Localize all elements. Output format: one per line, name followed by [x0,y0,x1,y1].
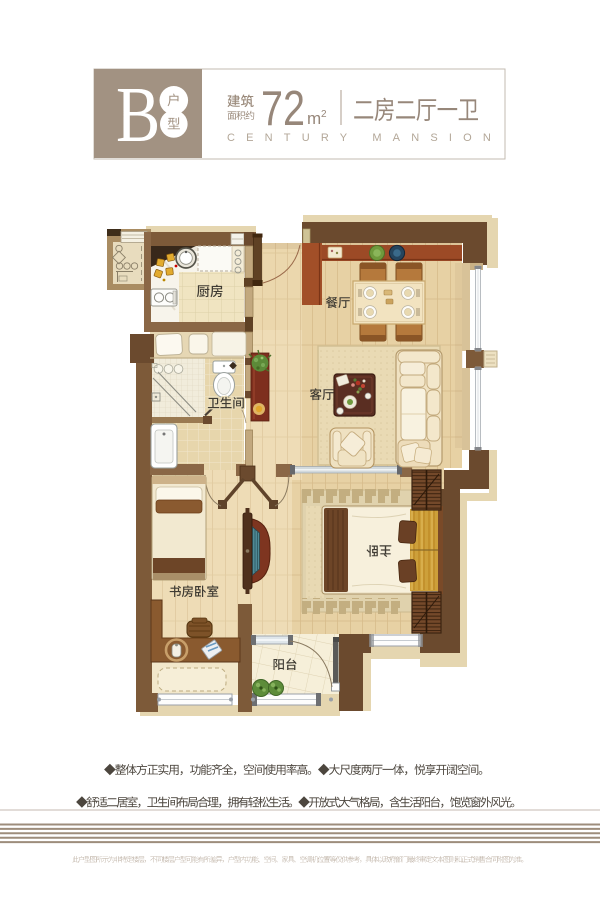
svg-text:2: 2 [321,109,327,120]
svg-text:72: 72 [261,82,305,136]
svg-text:B: B [116,71,160,159]
svg-text:CENTURY MANSION: CENTURY MANSION [227,132,499,144]
svg-text:m: m [307,109,321,128]
